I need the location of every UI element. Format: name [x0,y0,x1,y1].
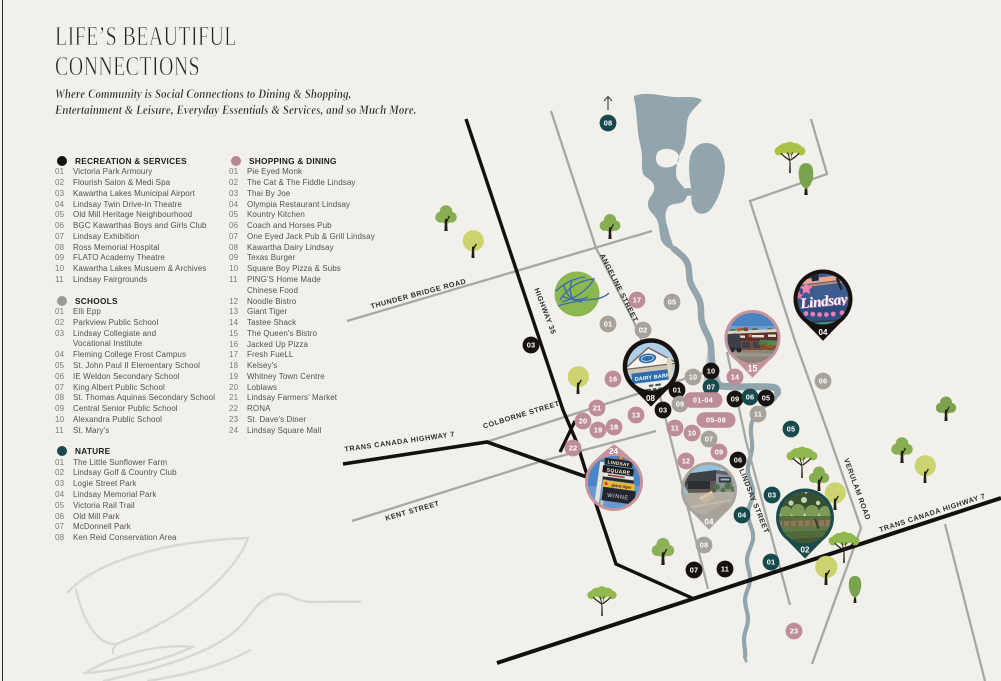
svg-text:04: 04 [705,518,714,527]
svg-text:04: 04 [819,328,828,337]
svg-text:24: 24 [609,447,618,456]
svg-text:08: 08 [646,394,655,403]
svg-text:15: 15 [748,364,758,374]
svg-text:02: 02 [801,546,810,555]
